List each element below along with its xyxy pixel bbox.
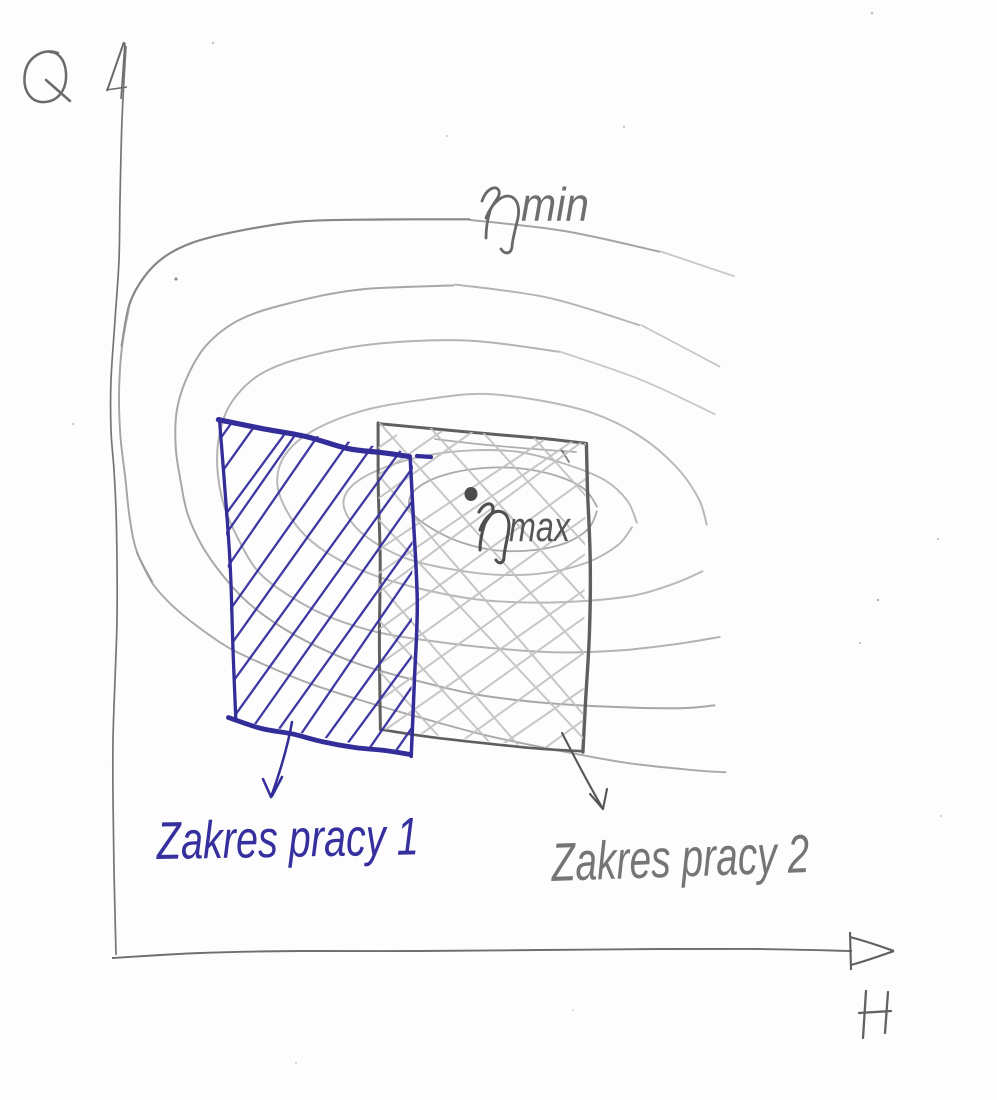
svg-text:Zakres pracy 1: Zakres pracy 1 <box>155 807 419 871</box>
svg-text:Zakres pracy 2: Zakres pracy 2 <box>549 824 810 893</box>
svg-text:min: min <box>521 178 589 231</box>
svg-text:max: max <box>509 503 572 550</box>
